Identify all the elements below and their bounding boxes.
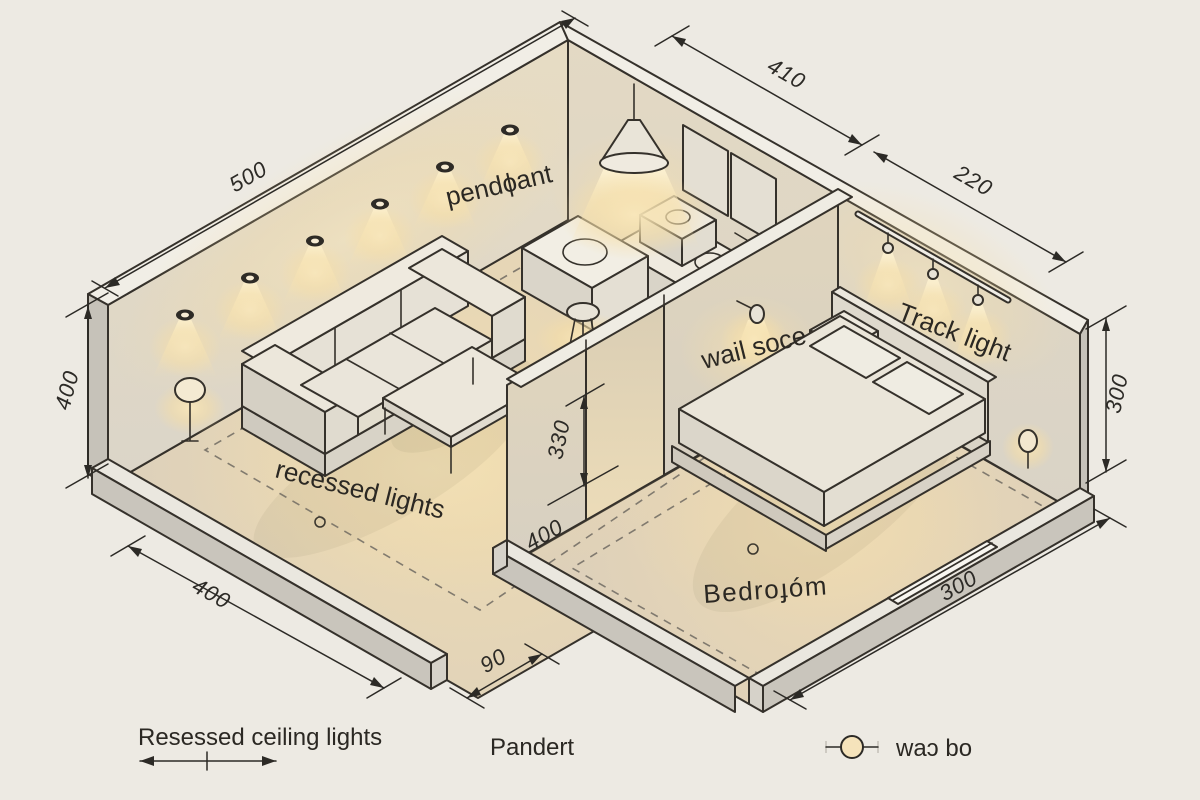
dim-400-left-label: 400 [50, 368, 84, 413]
legend-recessed: Resessed ceiling lights [138, 724, 382, 770]
dim-400-bottom-label: 400 [188, 573, 235, 614]
dim-300-right-label: 300 [1100, 371, 1133, 415]
legend-sconce-label: waɔ bo [895, 735, 972, 762]
legend: Resessed ceiling lights Pandert waɔ bo [138, 724, 972, 770]
legend-pendant: Pandert [490, 734, 574, 761]
legend-sconce: waɔ bo [826, 735, 972, 762]
legend-recessed-label: Resessed ceiling lights [138, 724, 382, 751]
dim-220-label: 220 [949, 159, 997, 201]
dimension-arrow-icon [140, 752, 276, 770]
bedside-sconce [1002, 423, 1054, 471]
sconce-symbol-icon [826, 736, 878, 758]
dim-410-label: 410 [763, 53, 810, 95]
legend-pendant-label: Pandert [490, 734, 574, 761]
isometric-lighting-floor-plan: 500 410 220 400 [0, 0, 1200, 800]
dim-300-right: 300 [1086, 306, 1133, 483]
